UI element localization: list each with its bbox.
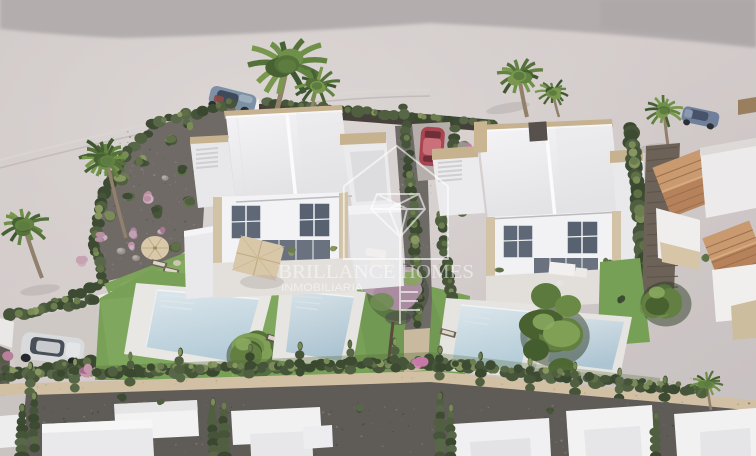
svg-text:BRILLANCE HOMES: BRILLANCE HOMES — [278, 261, 474, 283]
svg-text:INMOBILIARIA: INMOBILIARIA — [281, 282, 364, 294]
